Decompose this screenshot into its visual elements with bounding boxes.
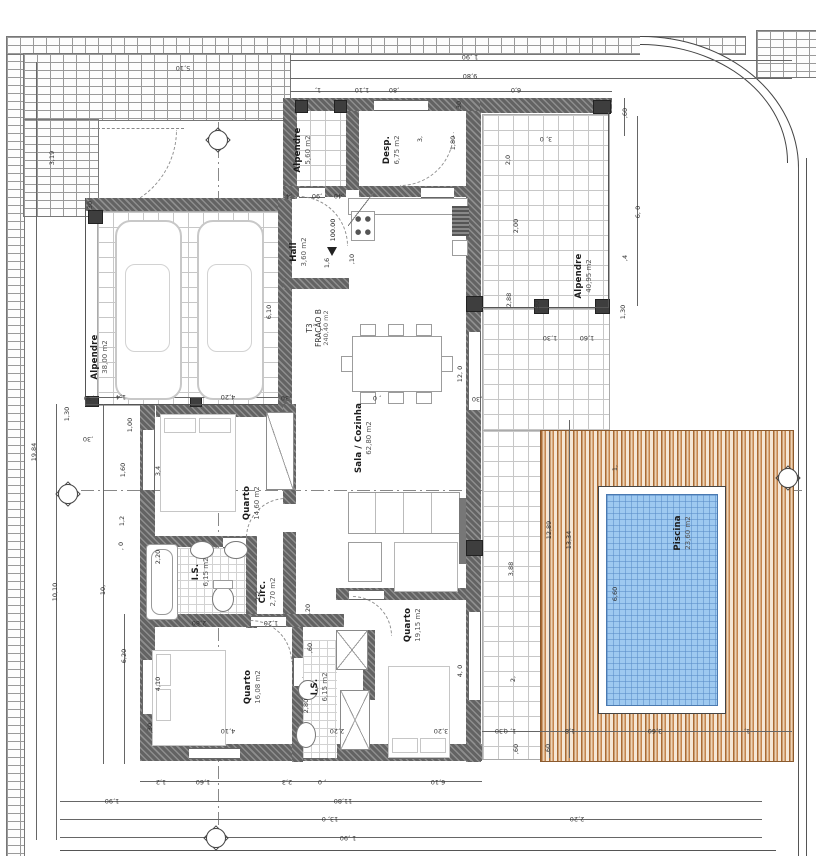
- dimension-line: [60, 801, 762, 802]
- dimension-label: 1,30: [619, 305, 627, 319]
- dimension-label: ,80: [389, 86, 399, 94]
- dimension-line: [624, 98, 625, 136]
- dimension-line: [549, 432, 550, 758]
- chair: [441, 356, 453, 372]
- tv-bench: [459, 498, 466, 564]
- paving-top-right-corner: [756, 30, 816, 78]
- car: [115, 220, 182, 400]
- toilet: [296, 722, 316, 748]
- section-marker: [776, 466, 800, 490]
- dimension-label: 1,2: [118, 516, 126, 526]
- section-marker-circle: [208, 130, 228, 150]
- wall: [283, 532, 296, 614]
- dimension-line: [290, 78, 792, 79]
- dimension-line: [140, 781, 482, 782]
- dimension-label: 4, 0: [456, 665, 464, 677]
- boundary-line-right: [798, 166, 799, 856]
- dimension-label: 1,60: [119, 463, 127, 477]
- room-label-is1: I.S. 6,15 m2: [192, 557, 210, 586]
- level-marker-value: 100.00: [329, 219, 337, 242]
- room-label-sala: Sala / Cozinha 62,80 m2: [355, 403, 373, 473]
- alpendre-right-edge: [482, 307, 608, 308]
- chair: [416, 324, 432, 336]
- chair: [341, 356, 353, 372]
- dimension-label: 1,30: [63, 407, 71, 421]
- pool: [606, 494, 718, 706]
- dimension-line: [482, 731, 792, 732]
- fridge: [452, 206, 469, 236]
- dimension-line: [60, 837, 762, 838]
- dimension-label: 2,3: [282, 778, 292, 786]
- bathtub-inner: [151, 549, 173, 615]
- paving-top-left: [23, 53, 291, 121]
- dimension-label: , 0: [117, 542, 125, 550]
- car-cabin: [207, 264, 252, 352]
- wall: [359, 186, 480, 197]
- dimension-label: 6,10: [431, 778, 445, 786]
- room-label-alpendre-small: Alpendre 5,60 m2: [294, 127, 312, 172]
- section-marker-circle: [58, 484, 78, 504]
- fraction-label: T3 FRAÇÃO B 240,40 m2: [305, 309, 331, 347]
- wardrobe: [266, 412, 294, 490]
- room-label-desp: Desp. 6,75 m2: [383, 135, 401, 164]
- window: [468, 612, 481, 700]
- garage-edge: [85, 404, 278, 405]
- wall: [278, 198, 292, 412]
- door-arc: [400, 132, 454, 186]
- ramp: [348, 192, 374, 226]
- dimension-line: [60, 819, 762, 820]
- dimension-label: 10,10: [51, 583, 59, 602]
- patio-tiles-strip: [482, 430, 542, 760]
- wall: [346, 98, 359, 190]
- dimension-label: 12, 0: [456, 366, 464, 383]
- alpendre-right-edge: [608, 112, 609, 308]
- wall: [85, 198, 292, 211]
- room-label-is2: I.S. 6,15 m2: [311, 672, 329, 701]
- dimension-label: 1,2: [156, 778, 166, 786]
- section-marker: [204, 826, 228, 850]
- chair: [388, 392, 404, 404]
- dimension-label: 1 ,90: [340, 834, 357, 842]
- dimension-label: ,20: [304, 604, 312, 614]
- post: [466, 296, 483, 312]
- dimension-label: 1,60: [196, 778, 210, 786]
- section-marker: [56, 482, 80, 506]
- window: [468, 332, 481, 410]
- post: [466, 540, 483, 556]
- chair: [416, 392, 432, 404]
- section-marker-circle: [778, 468, 798, 488]
- pillow: [392, 738, 418, 753]
- dining-table: [352, 336, 442, 392]
- sink: [224, 541, 248, 559]
- dimension-line: [124, 614, 125, 764]
- sofa: [348, 492, 460, 534]
- dimension-line: [637, 116, 638, 306]
- dimension-label: ,4: [621, 255, 629, 261]
- pillow: [156, 654, 171, 686]
- dimension-label: 1,00: [126, 418, 134, 432]
- dimension-line: [36, 62, 37, 840]
- garage-edge: [85, 198, 86, 406]
- wardrobe: [336, 630, 368, 670]
- car-cabin: [125, 264, 170, 352]
- dimension-label: ,10: [348, 254, 356, 264]
- dimension-label: 1,: [315, 86, 321, 94]
- dimension-label: ,30: [83, 435, 93, 443]
- room-label-hall: Hall 3,60 m2: [290, 237, 308, 266]
- floor-plan-canvas: 100.00 Alpendre 38,00 m2 Alpendre 5,60 m…: [0, 0, 816, 856]
- door-opening: [421, 187, 454, 198]
- window: [142, 430, 155, 490]
- room-label-alpendre-garage: Alpendre 38,00 m2: [91, 334, 109, 379]
- sink: [190, 541, 214, 559]
- dimension-line: [569, 420, 570, 758]
- room-label-quarto2: Quarto 16,08 m2: [244, 670, 262, 704]
- armchair: [348, 542, 382, 582]
- dimension-label: 6, 0: [634, 206, 642, 218]
- pillow: [420, 738, 446, 753]
- toilet-tank: [213, 580, 233, 589]
- chair: [388, 324, 404, 336]
- section-marker: [206, 128, 230, 152]
- post: [334, 100, 347, 113]
- post: [88, 210, 103, 224]
- boundary-line-bottom: [60, 850, 776, 851]
- chair: [360, 324, 376, 336]
- toilet: [212, 586, 234, 612]
- sink-kitchen: [452, 240, 468, 256]
- room-label-alpendre-right: Alpendre 40,95 m2: [575, 253, 593, 298]
- post: [190, 397, 202, 407]
- car: [197, 220, 264, 400]
- patio-tiles-upper: [482, 308, 610, 432]
- dimension-line: [103, 404, 104, 764]
- post: [295, 100, 308, 113]
- wall: [283, 278, 349, 289]
- shower: [340, 690, 370, 750]
- level-marker-icon: [327, 247, 337, 256]
- room-label-quarto3: Quarto 19,15 m2: [404, 608, 422, 642]
- dimension-label: ,60: [621, 108, 629, 118]
- gate-dashed-line: [92, 128, 184, 129]
- boundary-line-right-2: [806, 158, 807, 856]
- window: [189, 748, 240, 759]
- dimension-line: [290, 91, 612, 92]
- pillow: [156, 689, 171, 721]
- room-label-circ: Circ. 2,70 m2: [259, 577, 277, 606]
- dimension-label: 1,6: [323, 258, 331, 268]
- dimension-label: , 0: [318, 778, 326, 786]
- dimension-label: 1,10: [355, 86, 369, 94]
- pillow: [164, 418, 196, 433]
- section-marker-circle: [206, 828, 226, 848]
- room-label-piscina: Piscina 23,60 m2: [674, 515, 692, 550]
- coffee-table: [394, 542, 458, 592]
- dimension-label: 6,0: [511, 86, 521, 94]
- pillow: [199, 418, 231, 433]
- window: [374, 100, 428, 111]
- dimension-line: [85, 397, 292, 398]
- dimension-line: [56, 404, 57, 840]
- dimension-line: [290, 60, 792, 61]
- room-label-quarto1: Quarto 14,60 m2: [243, 486, 261, 520]
